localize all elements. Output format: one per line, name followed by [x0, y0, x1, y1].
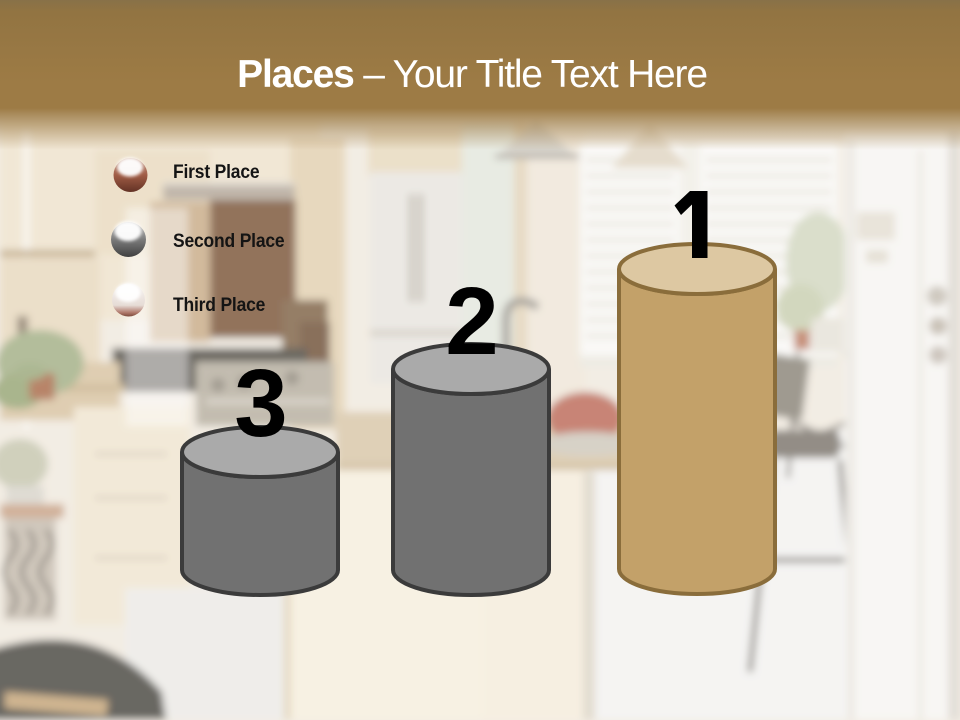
svg-text:2: 2	[445, 268, 498, 375]
svg-text:3: 3	[234, 350, 287, 457]
